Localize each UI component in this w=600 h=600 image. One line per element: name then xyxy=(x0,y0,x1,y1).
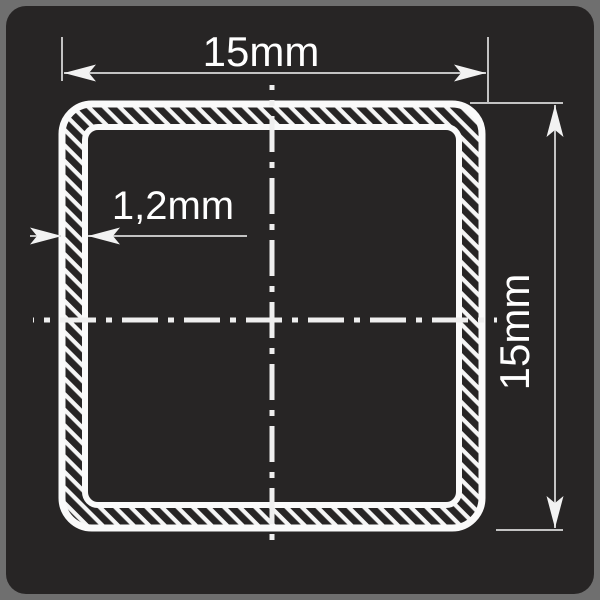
wall-thickness-label: 1,2mm xyxy=(112,184,234,228)
cross-section-diagram: 15mm 15mm 1,2mm xyxy=(0,0,600,600)
height-dimension-label: 15mm xyxy=(491,274,538,391)
drawing-stage: 15mm 15mm 1,2mm xyxy=(0,0,600,600)
width-dimension-label: 15mm xyxy=(203,28,320,75)
